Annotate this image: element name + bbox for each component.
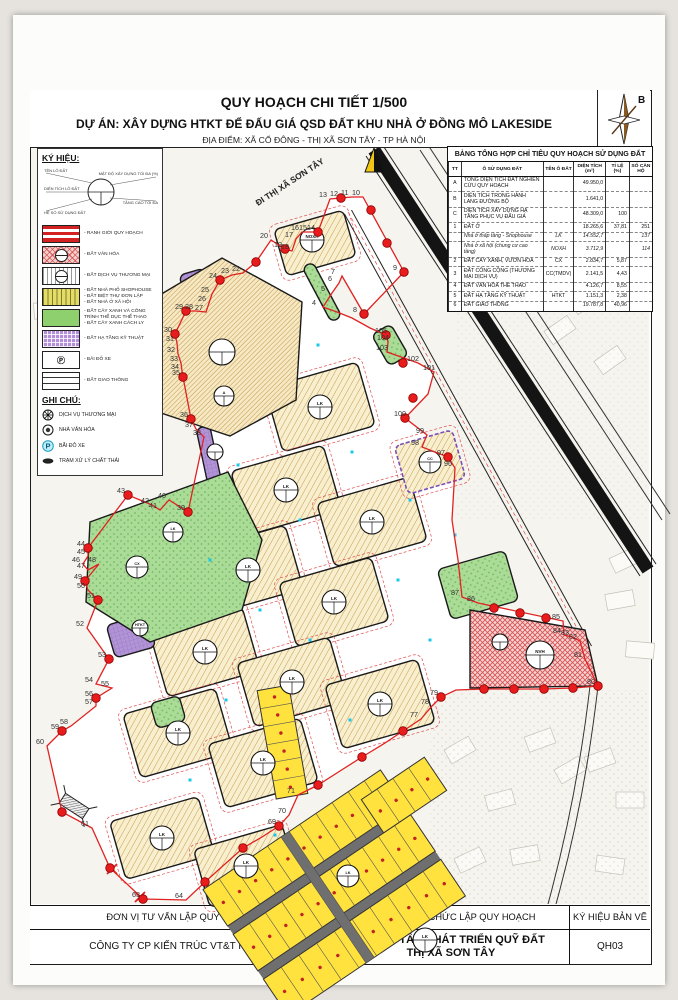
north-letter: B [638,95,645,106]
legend-item: - ĐẤT HẠ TẦNG KỸ THUẬT [42,330,159,348]
planning-sheet: ĐƠN VỊ TƯ VẤN LẬP QUY HOẠCH CÔNG TY CP K… [0,0,678,1000]
table-cell: 6 [449,302,462,311]
table-cell: CC(TMDV) [543,267,574,282]
table-row: Nhà ở thấp tầng - ShophouseLK14.552,7137 [449,232,653,242]
table-cell: A [449,177,462,192]
lot-circle-icon [55,249,68,262]
table-cell: 2.834,7 [574,257,606,267]
table-cell [606,242,630,257]
legend-item: - RANH GIỚI QUY HOẠCH [42,225,159,243]
table-cell [629,257,652,267]
note-label: BÃI ĐỖ XE [59,443,85,449]
col-header: Ô SỬ DỤNG ĐẤT [461,162,543,177]
legend-label: - ĐẤT GIAO THÔNG [84,378,128,384]
legend-heading: KÝ HIỆU: [42,153,159,163]
authority-name: TRUNG TÂM PHÁT TRIỂN QUỸ ĐẤT THỊ XÃ SƠN … [333,930,569,964]
table-cell [629,302,652,311]
note-item: NHÀ VĂN HÓA [42,424,159,436]
sheet-code: QH03 [570,930,650,964]
sheet-code-header: KÝ HIỆU BẢN VẼ [570,906,650,930]
table-cell: Nhà ở xã hội (chung cư cao tầng) [461,242,543,257]
table-cell: ĐẤT CÔNG CỘNG (THƯƠNG MẠI DỊCH VỤ) [461,267,543,282]
legend-panel: KÝ HIỆU: TÊN LÔ ĐẤTDIỆN TÍCH LÔ ĐẤTHỆ SỐ… [37,148,163,476]
table-cell: B [449,192,462,207]
svg-text:MẬT ĐỘ XÂY DỰNG TỐI ĐA (%): MẬT ĐỘ XÂY DỰNG TỐI ĐA (%) [99,171,159,176]
table-cell: 1 [449,223,462,233]
table-cell: 2.141,5 [574,267,606,282]
landuse-table: TTÔ SỬ DỤNG ĐẤTTÊN Ô ĐẤTDIỆN TÍCH (m²)TỈ… [448,162,652,311]
table-cell [543,223,574,233]
sheet-title: QUY HOẠCH CHI TIẾT 1/500 [30,90,598,114]
table-cell: 4,43 [606,267,630,282]
col-header: SỐ CĂN HỘ [629,162,652,177]
table-cell: C [449,207,462,222]
legend-swatch [42,288,80,306]
table-cell: 100 [606,207,630,222]
sheet-code-cell: KÝ HIỆU BẢN VẼ QH03 [570,906,650,964]
legend-swatch [42,267,80,285]
table-cell [606,192,630,207]
consultant-header: ĐƠN VỊ TƯ VẤN LẬP QUY HOẠCH [30,906,332,930]
table-cell: 2,38 [606,292,630,302]
note-label: NHÀ VĂN HÓA [59,427,95,433]
table-cell: 1.151,3 [574,292,606,302]
table-cell: HTKT [543,292,574,302]
table-cell: 48.309,0 [574,207,606,222]
legend-swatch [42,246,80,264]
tram-icon [42,455,54,467]
table-cell: 49.950,0 [574,177,606,192]
legend-item: - ĐẤT CÂY XANH VÀ CÔNG TRÌNH THỂ DỤC THỂ… [42,309,159,327]
dv-icon [42,409,54,421]
table-cell: DIỆN TÍCH TRONG HÀNH LANG ĐƯỜNG BỘ [461,192,543,207]
table-cell: ĐẤT VĂN HÓA THỂ THAO [461,282,543,292]
svg-text:TẦNG CAO TỐI ĐA: TẦNG CAO TỐI ĐA [123,200,159,205]
table-cell: NOXH [543,242,574,257]
table-cell: 2 [449,257,462,267]
table-row: 3ĐẤT CÔNG CỘNG (THƯƠNG MẠI DỊCH VỤ)CC(TM… [449,267,653,282]
legend-swatch [42,330,80,348]
col-header: TÊN Ô ĐẤT [543,162,574,177]
legend-item: - ĐẤT DỊCH VỤ THƯƠNG MẠI [42,267,159,285]
table-cell: 18.265,6 [574,223,606,233]
svg-text:TÊN LÔ ĐẤT: TÊN LÔ ĐẤT [44,168,68,173]
legend-item: - ĐẤT GIAO THÔNG [42,372,159,390]
legend-label: - ĐẤT HẠ TẦNG KỸ THUẬT [84,336,144,342]
legend-label: - ĐẤT DỊCH VỤ THƯƠNG MẠI [84,273,150,279]
svg-text:P: P [45,441,50,450]
table-cell: ĐẤT Ở [461,223,543,233]
table-cell: 37,81 [606,223,630,233]
table-cell: TỔNG DIỆN TÍCH ĐẤT NGHIÊN CỨU QUY HOẠCH [461,177,543,192]
table-cell: 4 [449,282,462,292]
landuse-table-panel: BẢNG TỔNG HỢP CHỈ TIÊU QUY HOẠCH SỬ DỤNG… [447,146,653,312]
table-row: BDIỆN TÍCH TRONG HÀNH LANG ĐƯỜNG BỘ1.641… [449,192,653,207]
table-row: ATỔNG DIỆN TÍCH ĐẤT NGHIÊN CỨU QUY HOẠCH… [449,177,653,192]
lot-circle-icon [55,270,68,283]
table-cell: ĐẤT GIAO THÔNG [461,302,543,311]
project-title: DỰ ÁN: XÂY DỰNG HTKT ĐỂ ĐẤU GIÁ QSD ĐẤT … [30,114,598,134]
legend-item: Ⓟ- BÃI ĐỖ XE [42,351,159,369]
table-row: Nhà ở xã hội (chung cư cao tầng)NOXH3.71… [449,242,653,257]
table-cell [606,232,630,242]
table-cell [543,282,574,292]
title-bar: ĐƠN VỊ TƯ VẤN LẬP QUY HOẠCH CÔNG TY CP K… [30,905,650,964]
table-cell [543,302,574,311]
table-cell: 114 [629,242,652,257]
table-cell [629,292,652,302]
table-cell: 1.641,0 [574,192,606,207]
table-cell [629,192,652,207]
legend-label: - ĐẤT NHÀ PHỐ SHOPHOUSE - ĐẤT BIỆT THỰ Đ… [84,288,152,306]
legend-item: - ĐẤT NHÀ PHỐ SHOPHOUSE - ĐẤT BIỆT THỰ Đ… [42,288,159,306]
p-icon: P [42,440,54,452]
legend-swatch [42,309,80,327]
table-cell: ĐẤT HẠ TẦNG KỸ THUẬT [461,292,543,302]
north-arrow-cell: B [597,90,650,147]
authority-cell: CƠ QUAN TỔ CHỨC LẬP QUY HOẠCH TRUNG TÂM … [333,906,570,964]
table-cell: DIỆN TÍCH XÂY DỰNG HẠ TẦNG PHỤC VỤ ĐẤU G… [461,207,543,222]
table-row: 1ĐẤT Ở18.265,637,81251 [449,223,653,233]
svg-text:HỆ SỐ SỬ DỤNG ĐẤT: HỆ SỐ SỬ DỤNG ĐẤT [44,210,86,215]
table-row: 6ĐẤT GIAO THÔNG19.787,840,96 [449,302,653,311]
table-cell [606,177,630,192]
consultant-name: CÔNG TY CP KIẾN TRÚC VT&T HÀ NỘI [30,930,332,964]
note-item: TRẠM XỬ LÝ CHẤT THẢI [42,455,159,467]
table-cell [629,177,652,192]
table-title: BẢNG TỔNG HỢP CHỈ TIÊU QUY HOẠCH SỬ DỤNG… [448,147,652,162]
table-cell: ĐẤT CÂY XANH, VƯỜN HOA [461,257,543,267]
legend-item: - ĐẤT VĂN HÓA [42,246,159,264]
title-block: QUY HOẠCH CHI TIẾT 1/500 DỰ ÁN: XÂY DỰNG… [30,90,650,148]
table-cell [629,267,652,282]
note-label: TRẠM XỬ LÝ CHẤT THẢI [59,458,119,464]
legend-label: - ĐẤT CÂY XANH VÀ CÔNG TRÌNH THỂ DỤC THỂ… [84,309,159,327]
note-item: DỊCH VỤ THƯƠNG MẠI [42,409,159,421]
table-row: 5ĐẤT HẠ TẦNG KỸ THUẬTHTKT1.151,32,38 [449,292,653,302]
table-row: CDIỆN TÍCH XÂY DỰNG HẠ TẦNG PHỤC VỤ ĐẤU … [449,207,653,222]
table-cell [543,177,574,192]
note-label: DỊCH VỤ THƯƠNG MẠI [59,412,116,418]
table-cell: 4.126,7 [574,282,606,292]
table-cell: 5,87 [606,257,630,267]
table-cell [543,192,574,207]
table-cell: LK [543,232,574,242]
table-cell [629,207,652,222]
legend-label: - ĐẤT VĂN HÓA [84,252,119,258]
note-item: PBÃI ĐỖ XE [42,440,159,452]
table-cell [543,207,574,222]
svg-text:DIỆN TÍCH LÔ ĐẤT: DIỆN TÍCH LÔ ĐẤT [44,186,80,191]
table-cell: 14.552,7 [574,232,606,242]
lot-symbol-diagram: TÊN LÔ ĐẤTDIỆN TÍCH LÔ ĐẤTHỆ SỐ SỬ DỤNG … [42,165,160,217]
table-row: 2ĐẤT CÂY XANH, VƯỜN HOACX2.834,75,87 [449,257,653,267]
table-cell: 251 [629,223,652,233]
legend-swatch [42,372,80,390]
consultant-cell: ĐƠN VỊ TƯ VẤN LẬP QUY HOẠCH CÔNG TY CP K… [30,906,333,964]
table-cell: 5 [449,292,462,302]
table-cell: 137 [629,232,652,242]
table-cell [629,282,652,292]
table-row: 4ĐẤT VĂN HÓA THỂ THAO4.126,78,55 [449,282,653,292]
nvh-icon [42,424,54,436]
table-cell [449,232,462,242]
authority-header: CƠ QUAN TỔ CHỨC LẬP QUY HOẠCH [333,906,569,930]
table-cell: 19.787,8 [574,302,606,311]
table-cell: 3.712,9 [574,242,606,257]
col-header: TỈ LỆ (%) [606,162,630,177]
table-cell: 40,96 [606,302,630,311]
notes-heading: GHI CHÚ: [42,395,159,405]
table-cell: CX [543,257,574,267]
legend-label: - RANH GIỚI QUY HOẠCH [84,231,143,237]
legend-swatch: Ⓟ [42,351,80,369]
col-header: TT [449,162,462,177]
table-cell: 3 [449,267,462,282]
north-arrow-icon: B [598,90,650,147]
table-cell: Nhà ở thấp tầng - Shophouse [461,232,543,242]
legend-swatch [42,225,80,243]
table-cell [449,242,462,257]
col-header: DIỆN TÍCH (m²) [574,162,606,177]
table-cell: 8,55 [606,282,630,292]
legend-label: - BÃI ĐỖ XE [84,357,111,363]
